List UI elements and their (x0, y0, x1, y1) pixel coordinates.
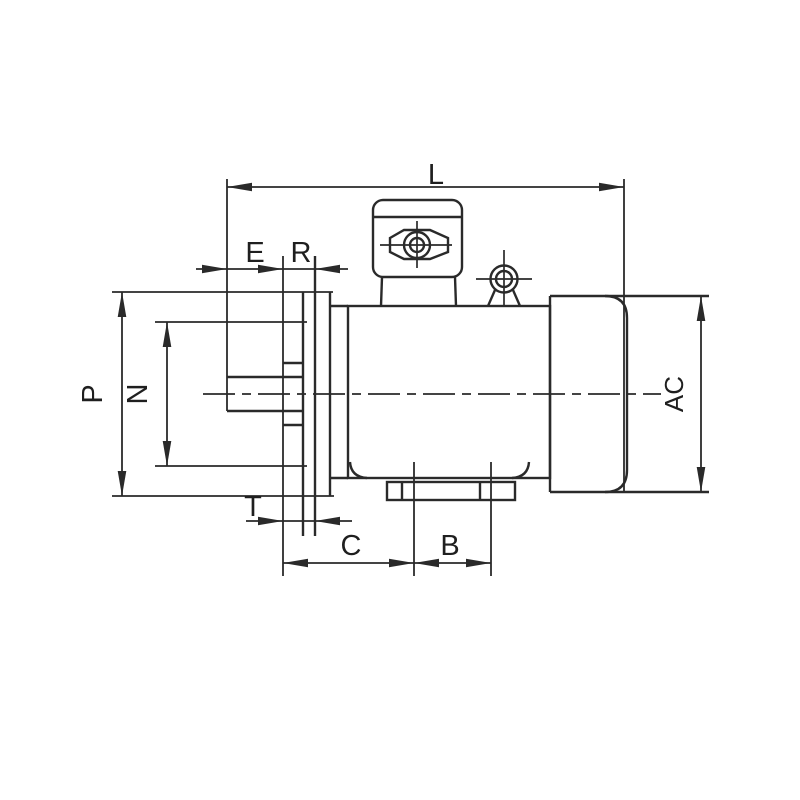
dim-label-N: N (122, 384, 154, 405)
dim-label-R: R (291, 237, 312, 269)
dim-label-AC: AC (659, 376, 689, 412)
dim-label-C: C (341, 530, 362, 562)
dimension-L: L (227, 159, 624, 492)
eyebolt-icon (476, 250, 532, 306)
dimension-E-R: E R (196, 237, 348, 273)
motor-outline (203, 200, 709, 576)
drawing-canvas: L E R P N (0, 0, 800, 800)
dim-label-T: T (244, 491, 262, 523)
motor-dimension-drawing: L E R P N (0, 0, 800, 800)
dim-label-L: L (428, 159, 444, 191)
dimension-AC: AC (659, 296, 705, 492)
dim-label-B: B (440, 530, 459, 562)
flange-plates (283, 256, 330, 576)
cable-gland-icon (380, 221, 452, 268)
dimensions: L E R P N (77, 159, 705, 576)
dim-label-P: P (77, 384, 109, 403)
dim-label-E: E (245, 237, 264, 269)
mounting-feet (350, 462, 529, 500)
motor-body (330, 306, 550, 478)
